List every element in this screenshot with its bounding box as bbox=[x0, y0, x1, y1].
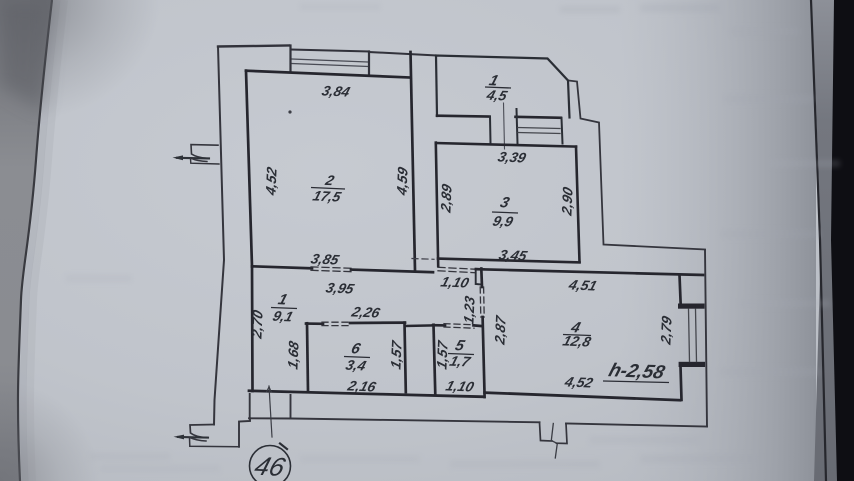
svg-text:12,8: 12,8 bbox=[561, 334, 593, 351]
svg-text:3,39: 3,39 bbox=[496, 150, 528, 167]
svg-text:2,16: 2,16 bbox=[345, 379, 378, 396]
svg-text:2,26: 2,26 bbox=[349, 305, 382, 322]
svg-text:4,51: 4,51 bbox=[566, 278, 599, 295]
svg-text:3,84: 3,84 bbox=[320, 84, 352, 101]
svg-text:2,87: 2,87 bbox=[493, 313, 510, 347]
svg-text:2,90: 2,90 bbox=[560, 185, 577, 218]
svg-text:2,89: 2,89 bbox=[439, 182, 456, 215]
svg-text:1,68: 1,68 bbox=[286, 339, 303, 371]
svg-text:4,59: 4,59 bbox=[395, 165, 412, 198]
svg-text:1,10: 1,10 bbox=[444, 379, 476, 396]
svg-text:1,10: 1,10 bbox=[439, 275, 471, 292]
svg-text:2,79: 2,79 bbox=[659, 314, 676, 347]
svg-text:4,52: 4,52 bbox=[562, 375, 595, 392]
svg-text:2,70: 2,70 bbox=[250, 308, 267, 341]
svg-text:h-2,58: h-2,58 bbox=[606, 360, 667, 383]
svg-text:4,52: 4,52 bbox=[264, 165, 281, 198]
svg-text:1,23: 1,23 bbox=[462, 294, 479, 326]
